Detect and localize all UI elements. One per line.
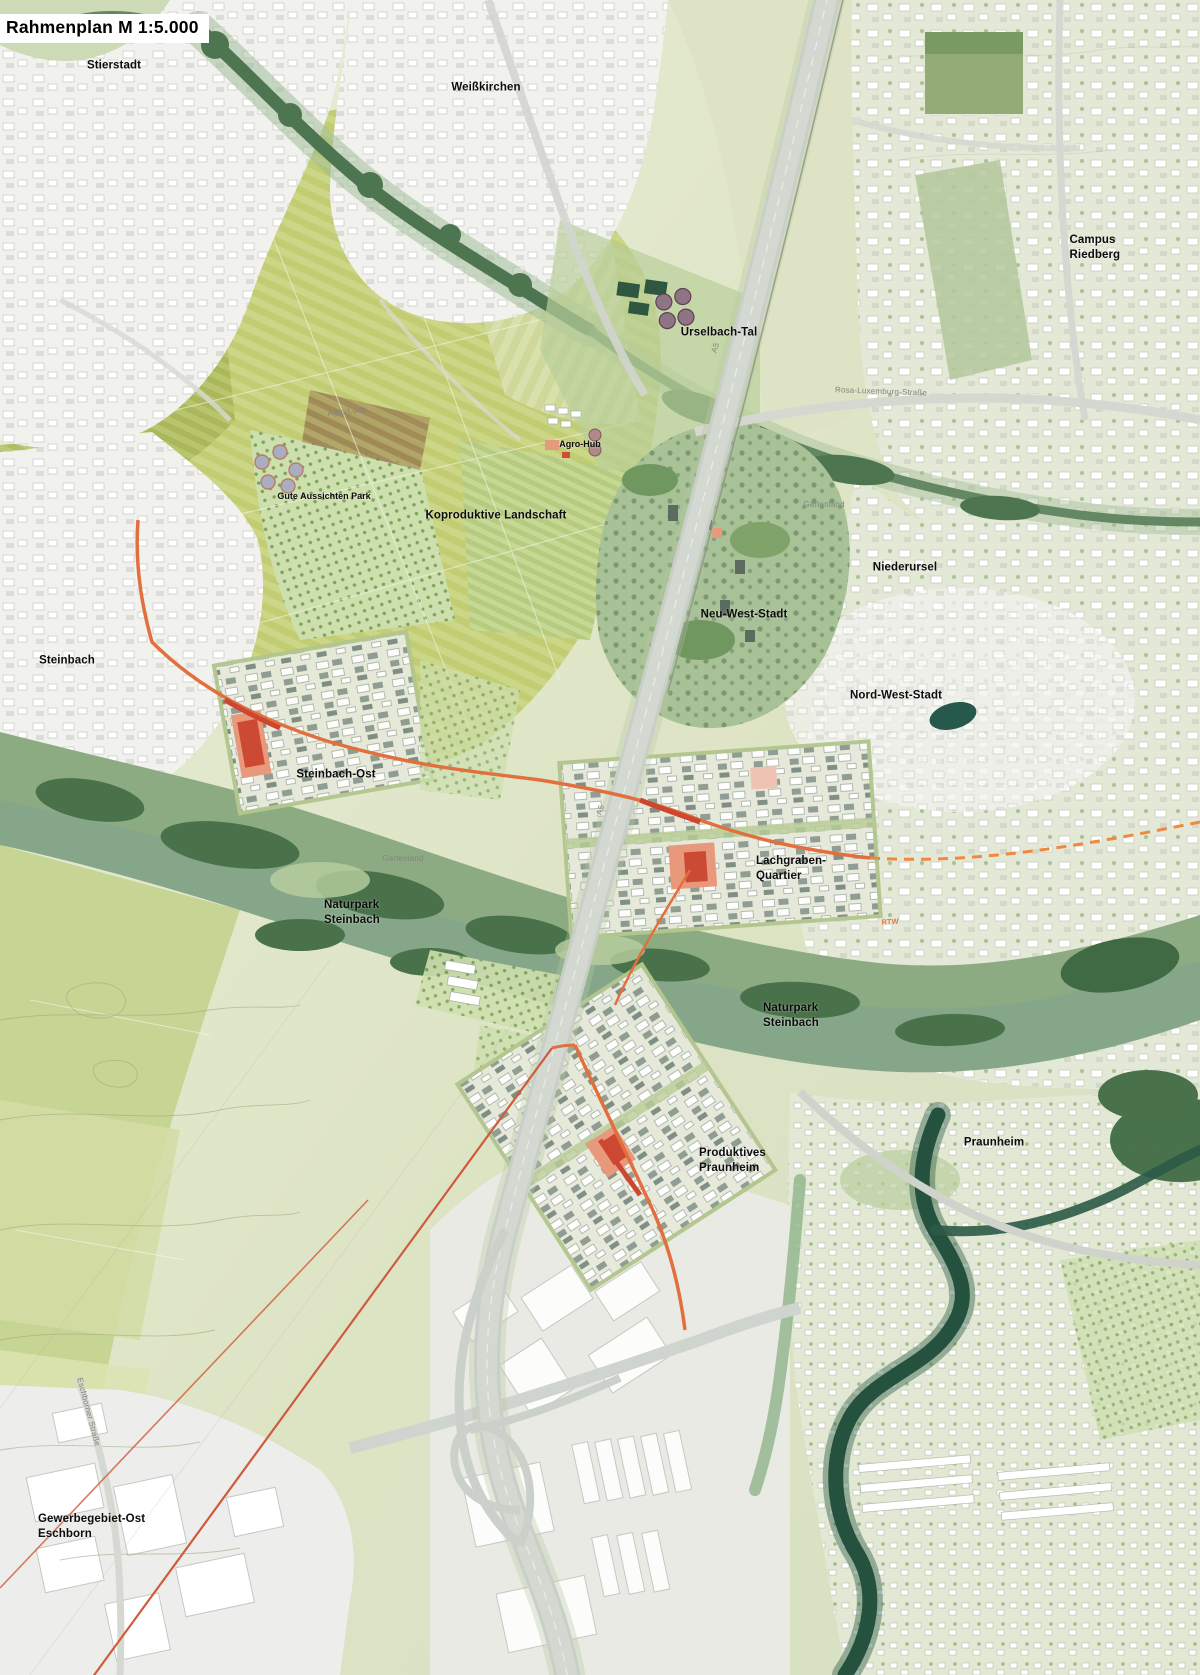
masterplan-map: Rahmenplan M 1:5.000 StierstadtWeißkirch… [0, 0, 1200, 1675]
map-graphic [0, 0, 1200, 1675]
quarter-steinbach-ost [214, 632, 432, 814]
